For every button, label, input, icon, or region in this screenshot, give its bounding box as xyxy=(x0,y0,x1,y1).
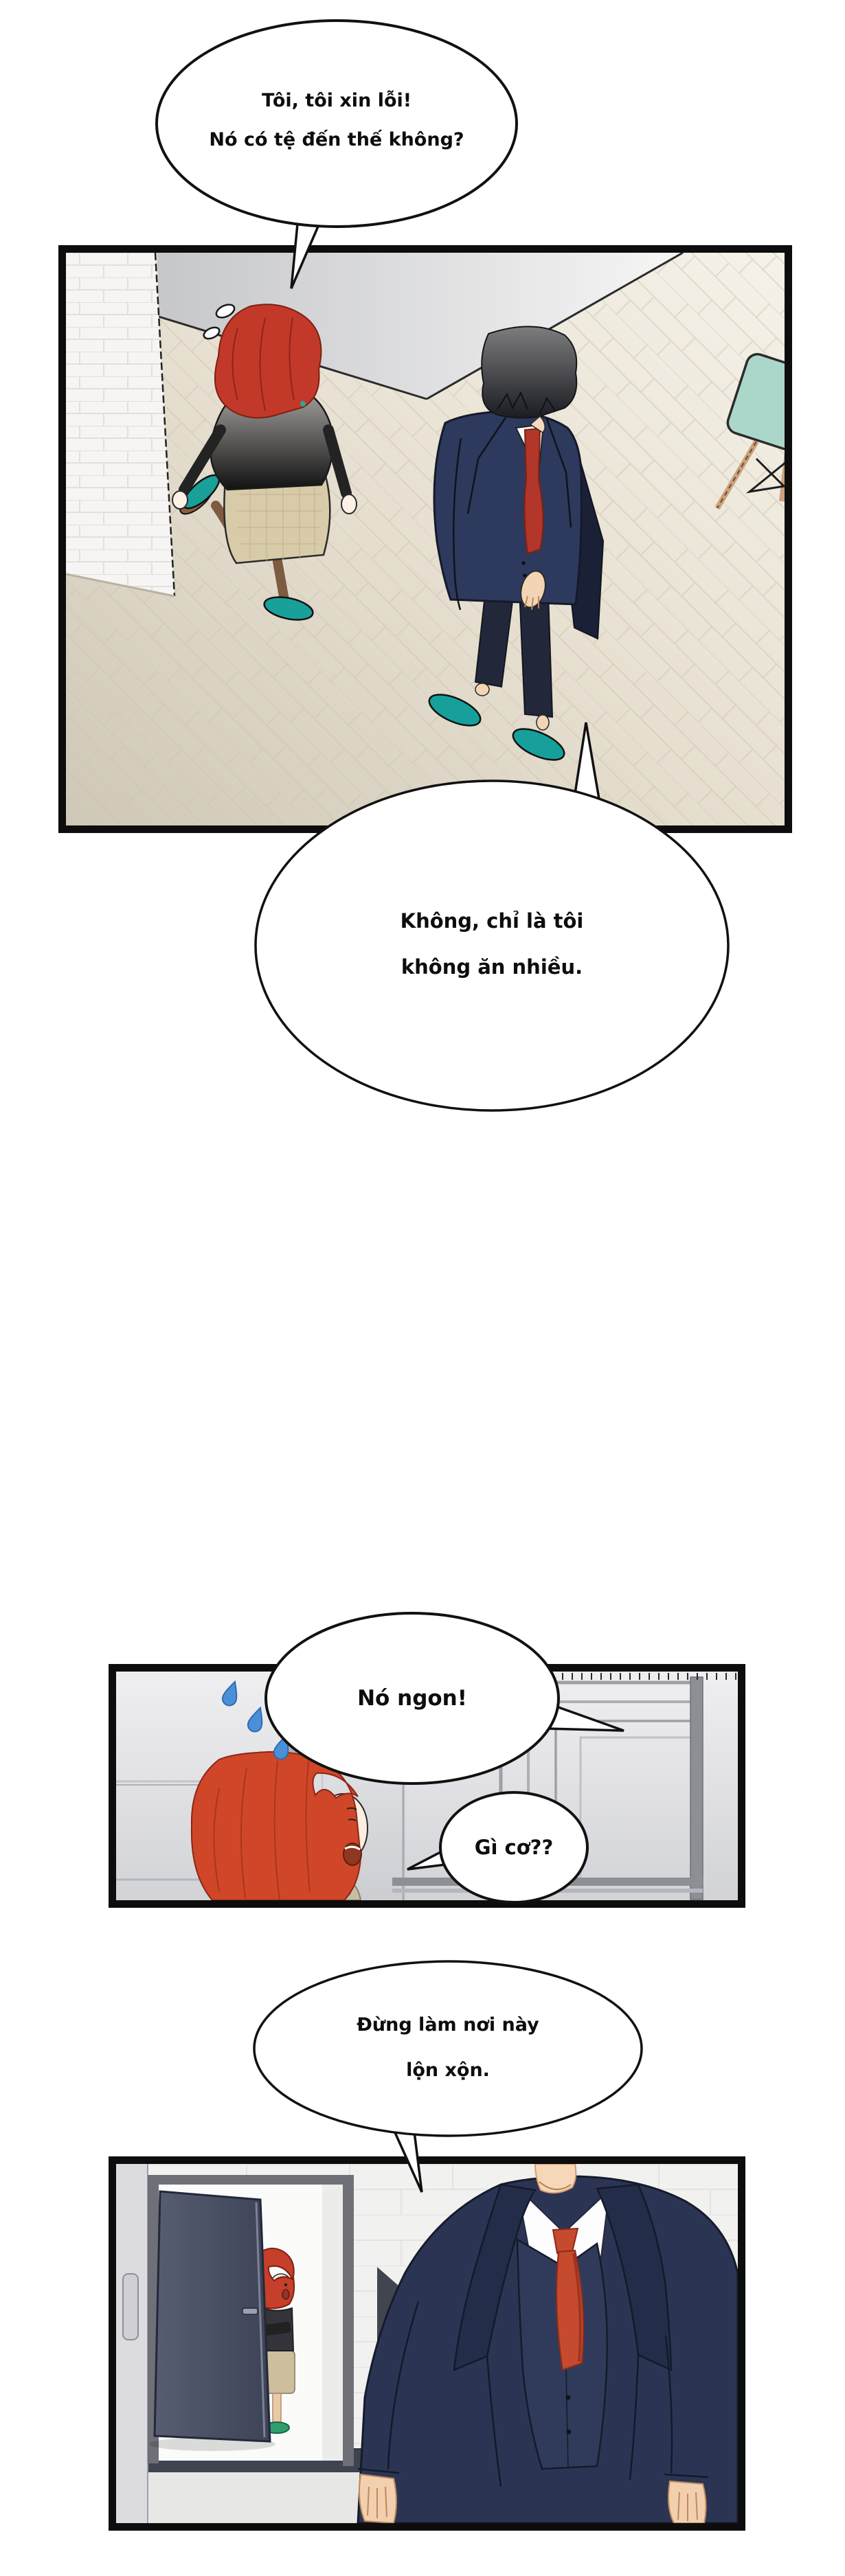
bubble-5-text: Đừng làm nơi này lộn xộn. xyxy=(276,2003,620,2093)
panel-1 xyxy=(58,245,792,833)
comic-page: Tôi, tôi xin lỗi! Nó có tệ đến thế không… xyxy=(0,0,845,2576)
bubble-1-line-2: Nó có tệ đến thế không? xyxy=(172,120,502,159)
bubble-5-line-2: lộn xộn. xyxy=(276,2048,620,2093)
bubble-4-text: Gì cơ?? xyxy=(411,1832,617,1862)
bubble-4-line-1: Gì cơ?? xyxy=(411,1832,617,1862)
panel-1-scene xyxy=(66,253,785,825)
bubble-3-text: Nó ngon! xyxy=(302,1683,522,1713)
bubble-1-line-1: Tôi, tôi xin lỗi! xyxy=(172,81,502,120)
door-handle-plate xyxy=(123,2274,138,2340)
bubble-2-line-1: Không, chỉ là tôi xyxy=(286,898,698,944)
bubble-2-line-2: không ăn nhiều. xyxy=(286,944,698,990)
door-handle xyxy=(243,2308,258,2314)
panel-3-scene xyxy=(116,2164,738,2523)
panel-3 xyxy=(109,2156,745,2531)
bubble-5-line-1: Đừng làm nơi này xyxy=(276,2003,620,2048)
open-door xyxy=(149,2191,275,2451)
left-wall xyxy=(116,2164,148,2523)
bubble-3-line-1: Nó ngon! xyxy=(302,1683,522,1713)
bubble-2-text: Không, chỉ là tôi không ăn nhiều. xyxy=(286,898,698,990)
bubble-1-text: Tôi, tôi xin lỗi! Nó có tệ đến thế không… xyxy=(172,81,502,159)
